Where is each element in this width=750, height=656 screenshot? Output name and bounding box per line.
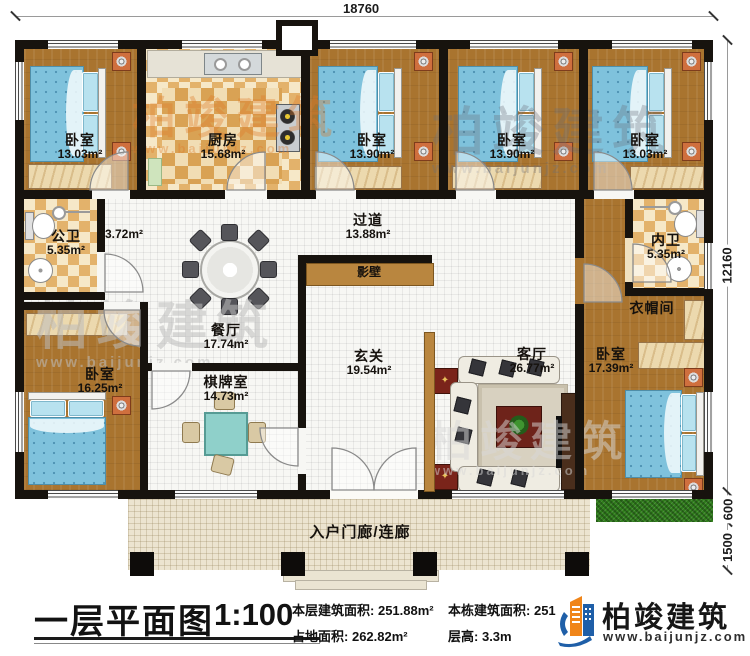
stat-value: 251.88m² (378, 603, 434, 618)
dimension-porch: 1500 (720, 530, 735, 565)
porch-column (281, 552, 305, 576)
window (452, 490, 564, 499)
wardrobe (314, 166, 402, 189)
room-label-bedroom-tm2: 卧室 13.90m² (490, 132, 535, 162)
door-opening (104, 302, 140, 310)
room-label-dining: 餐厅 17.74m² (204, 322, 249, 352)
nightstand (682, 52, 701, 71)
wall (625, 288, 704, 296)
door-opening (92, 190, 130, 199)
title-underline-thin (34, 643, 320, 644)
bed-headboard (696, 392, 704, 476)
door-opening (594, 190, 634, 199)
room-name: 衣帽间 (630, 300, 675, 316)
room-name: 卧室 (630, 132, 660, 148)
room-area: 26.77m² (510, 362, 555, 376)
bed-pillow (68, 400, 104, 417)
nightstand (684, 368, 703, 387)
room-label-bedroom-br: 卧室 17.39m² (589, 346, 634, 376)
room-label-porch: 入户门廊/连廊 (309, 524, 410, 541)
window (470, 40, 558, 49)
chimney (276, 20, 318, 56)
window (15, 392, 24, 452)
shower-knob-icon (668, 201, 682, 215)
door-opening (298, 428, 306, 474)
room-name: 公卫 (51, 228, 81, 244)
wood-partition (424, 332, 435, 492)
info-bar: 一层平面图 1:100 本层建筑面积: 251.88m² 占地面积: 262.8… (0, 590, 750, 656)
room-name: 卧室 (357, 132, 387, 148)
room-name: 客厅 (517, 346, 547, 362)
sofa (458, 466, 560, 492)
window (175, 490, 257, 499)
bed-headboard (394, 68, 402, 158)
room-name: 内卫 (651, 232, 681, 248)
dimension-width: 18760 (340, 1, 382, 16)
kitchen-sink (204, 53, 262, 75)
shower-pipe-icon (640, 206, 670, 208)
stat-value: 3.3m (482, 629, 512, 644)
burner-icon (280, 109, 295, 124)
bed-pillow (378, 72, 395, 112)
room-name: 卧室 (596, 346, 626, 362)
room-area: 13.90m² (490, 148, 535, 162)
room-name: 卧室 (65, 132, 95, 148)
plan-scale: 1:100 (214, 597, 293, 633)
chess-chair (182, 422, 200, 443)
stat-label: 本栋建筑面积: (448, 603, 530, 618)
window (612, 490, 692, 499)
room-label-chess-room: 棋牌室 14.73m² (204, 374, 249, 404)
room-name: 棋牌室 (204, 374, 249, 390)
grass-strip (596, 499, 713, 522)
stat-value: 262.82m² (352, 629, 408, 644)
room-label-living: 客厅 26.77m² (510, 346, 555, 376)
room-area: 19.54m² (347, 364, 392, 378)
cloakroom-rack (638, 342, 706, 369)
room-area: 16.25m² (78, 382, 123, 396)
room-area: 5.35m² (47, 244, 85, 258)
dimension-line (15, 16, 713, 17)
bed-pillow (681, 434, 697, 472)
room-area: 5.35m² (647, 248, 685, 262)
window (15, 62, 24, 120)
nightstand (112, 142, 131, 161)
dining-chair (221, 298, 238, 315)
sink-icon (28, 258, 53, 283)
wardrobe (630, 166, 704, 189)
room-name: 过道 (353, 212, 383, 228)
wall (24, 292, 105, 300)
plant-icon (508, 414, 530, 436)
nightstand (112, 52, 131, 71)
room-name: 餐厅 (211, 322, 241, 338)
wall (306, 255, 432, 263)
bed-pillow (30, 400, 66, 417)
room-area: 13.03m² (623, 148, 668, 162)
room-label-bedroom-tm: 卧室 13.90m² (350, 132, 395, 162)
wall (301, 49, 310, 190)
stat-label: 占地面积: (292, 629, 348, 644)
dining-chair (182, 261, 199, 278)
window (704, 392, 713, 452)
dining-chair (221, 224, 238, 241)
bed-pillow (518, 72, 535, 112)
chess-chair (248, 422, 266, 443)
nightstand (554, 52, 573, 71)
room-area: 13.88m² (346, 228, 391, 242)
room-area: 14.73m² (204, 390, 249, 404)
porch-column (565, 552, 589, 576)
room-name: 卧室 (497, 132, 527, 148)
room-label-hallway: 3.72m² (105, 228, 143, 242)
room-name: 卧室 (85, 366, 115, 382)
door-opening (625, 238, 633, 282)
wardrobe (452, 166, 542, 189)
brand-website: www.baijunjz.com (603, 629, 747, 644)
window (330, 40, 416, 49)
bed-pillow (681, 394, 697, 432)
room-label-public-bath: 公卫 5.35m² (47, 228, 85, 258)
room-label-inner-bath: 内卫 5.35m² (647, 232, 685, 262)
door-opening (152, 363, 192, 371)
faucet-icon (238, 58, 251, 71)
wall (579, 49, 588, 190)
brand-logo: 柏竣建筑 www.baijunjz.com (556, 590, 750, 656)
room-area: 13.03m² (58, 148, 103, 162)
chess-table (204, 412, 248, 456)
room-name: 入户门廊/连廊 (309, 524, 410, 541)
page-title: 一层平面图 (34, 594, 214, 643)
nightstand (682, 142, 701, 161)
faucet-icon (214, 58, 227, 71)
room-area: 13.90m² (350, 148, 395, 162)
stat-label: 层高: (448, 629, 478, 644)
wardrobe (26, 313, 128, 336)
stat-label: 本层建筑面积: (292, 603, 374, 618)
wall (575, 199, 584, 492)
window (48, 40, 118, 49)
porch-step-lower (295, 580, 427, 590)
window (612, 40, 692, 49)
bed-pillow (82, 72, 99, 112)
wardrobe (28, 164, 112, 189)
room-name: 厨房 (208, 132, 238, 148)
room-label-corridor: 过道 13.88m² (346, 212, 391, 242)
room-label-bedroom-tr: 卧室 13.03m² (623, 132, 668, 162)
window (182, 40, 262, 49)
room-area: 17.74m² (204, 338, 249, 352)
door-opening (316, 190, 356, 199)
nightstand (414, 142, 433, 161)
room-name: 玄关 (354, 348, 384, 364)
dining-chair (260, 261, 277, 278)
dimension-grass: 600 (720, 496, 735, 524)
stat-floor-area: 本层建筑面积: 251.88m² (292, 600, 434, 619)
room-label-screen-wall: 影壁 (357, 266, 381, 280)
title-underline (34, 637, 320, 640)
room-label-bedroom-tl: 卧室 13.03m² (58, 132, 103, 162)
dining-table (200, 240, 260, 300)
nightstand (112, 396, 131, 415)
door-opening (456, 190, 496, 199)
room-area: 17.39m² (589, 362, 634, 376)
room-name: 影壁 (357, 266, 381, 280)
wall (140, 302, 148, 490)
wall (439, 49, 448, 190)
window (704, 243, 713, 289)
room-area: 15.68m² (201, 148, 246, 162)
room-label-bedroom-bl: 卧室 16.25m² (78, 366, 123, 396)
kitchen-mat (148, 158, 162, 186)
cloakroom-rack (684, 300, 706, 340)
bed-headboard (534, 68, 542, 158)
stat-footprint-area: 占地面积: 262.82m² (292, 626, 408, 645)
wall (137, 49, 146, 190)
window (48, 490, 118, 499)
room-label-kitchen: 厨房 15.68m² (201, 132, 246, 162)
bed-sheet (30, 419, 104, 433)
room-label-cloakroom: 衣帽间 (630, 300, 675, 316)
room-area: 3.72m² (105, 228, 143, 242)
nightstand (554, 142, 573, 161)
floor-plan-page: ✦ ✦ 柏竣建筑 www.baijunjz.com 柏竣建筑 www.baiju… (0, 0, 750, 656)
porch-column (413, 552, 437, 576)
door-opening (575, 258, 584, 304)
window (704, 62, 713, 120)
building-logo-icon (556, 592, 598, 648)
room-label-foyer: 玄关 19.54m² (347, 348, 392, 378)
door-opening (97, 252, 105, 292)
dimension-height: 12160 (720, 244, 735, 286)
shower-knob-icon (52, 206, 66, 220)
stat-floor-height: 层高: 3.3m (448, 626, 512, 645)
bed-sheet (664, 393, 680, 473)
tv-icon (556, 416, 562, 468)
bed-pillow (648, 72, 665, 112)
porch-column (130, 552, 154, 576)
door-opening (225, 190, 267, 199)
nightstand (414, 52, 433, 71)
entrance-opening (330, 490, 418, 499)
burner-icon (280, 130, 295, 145)
